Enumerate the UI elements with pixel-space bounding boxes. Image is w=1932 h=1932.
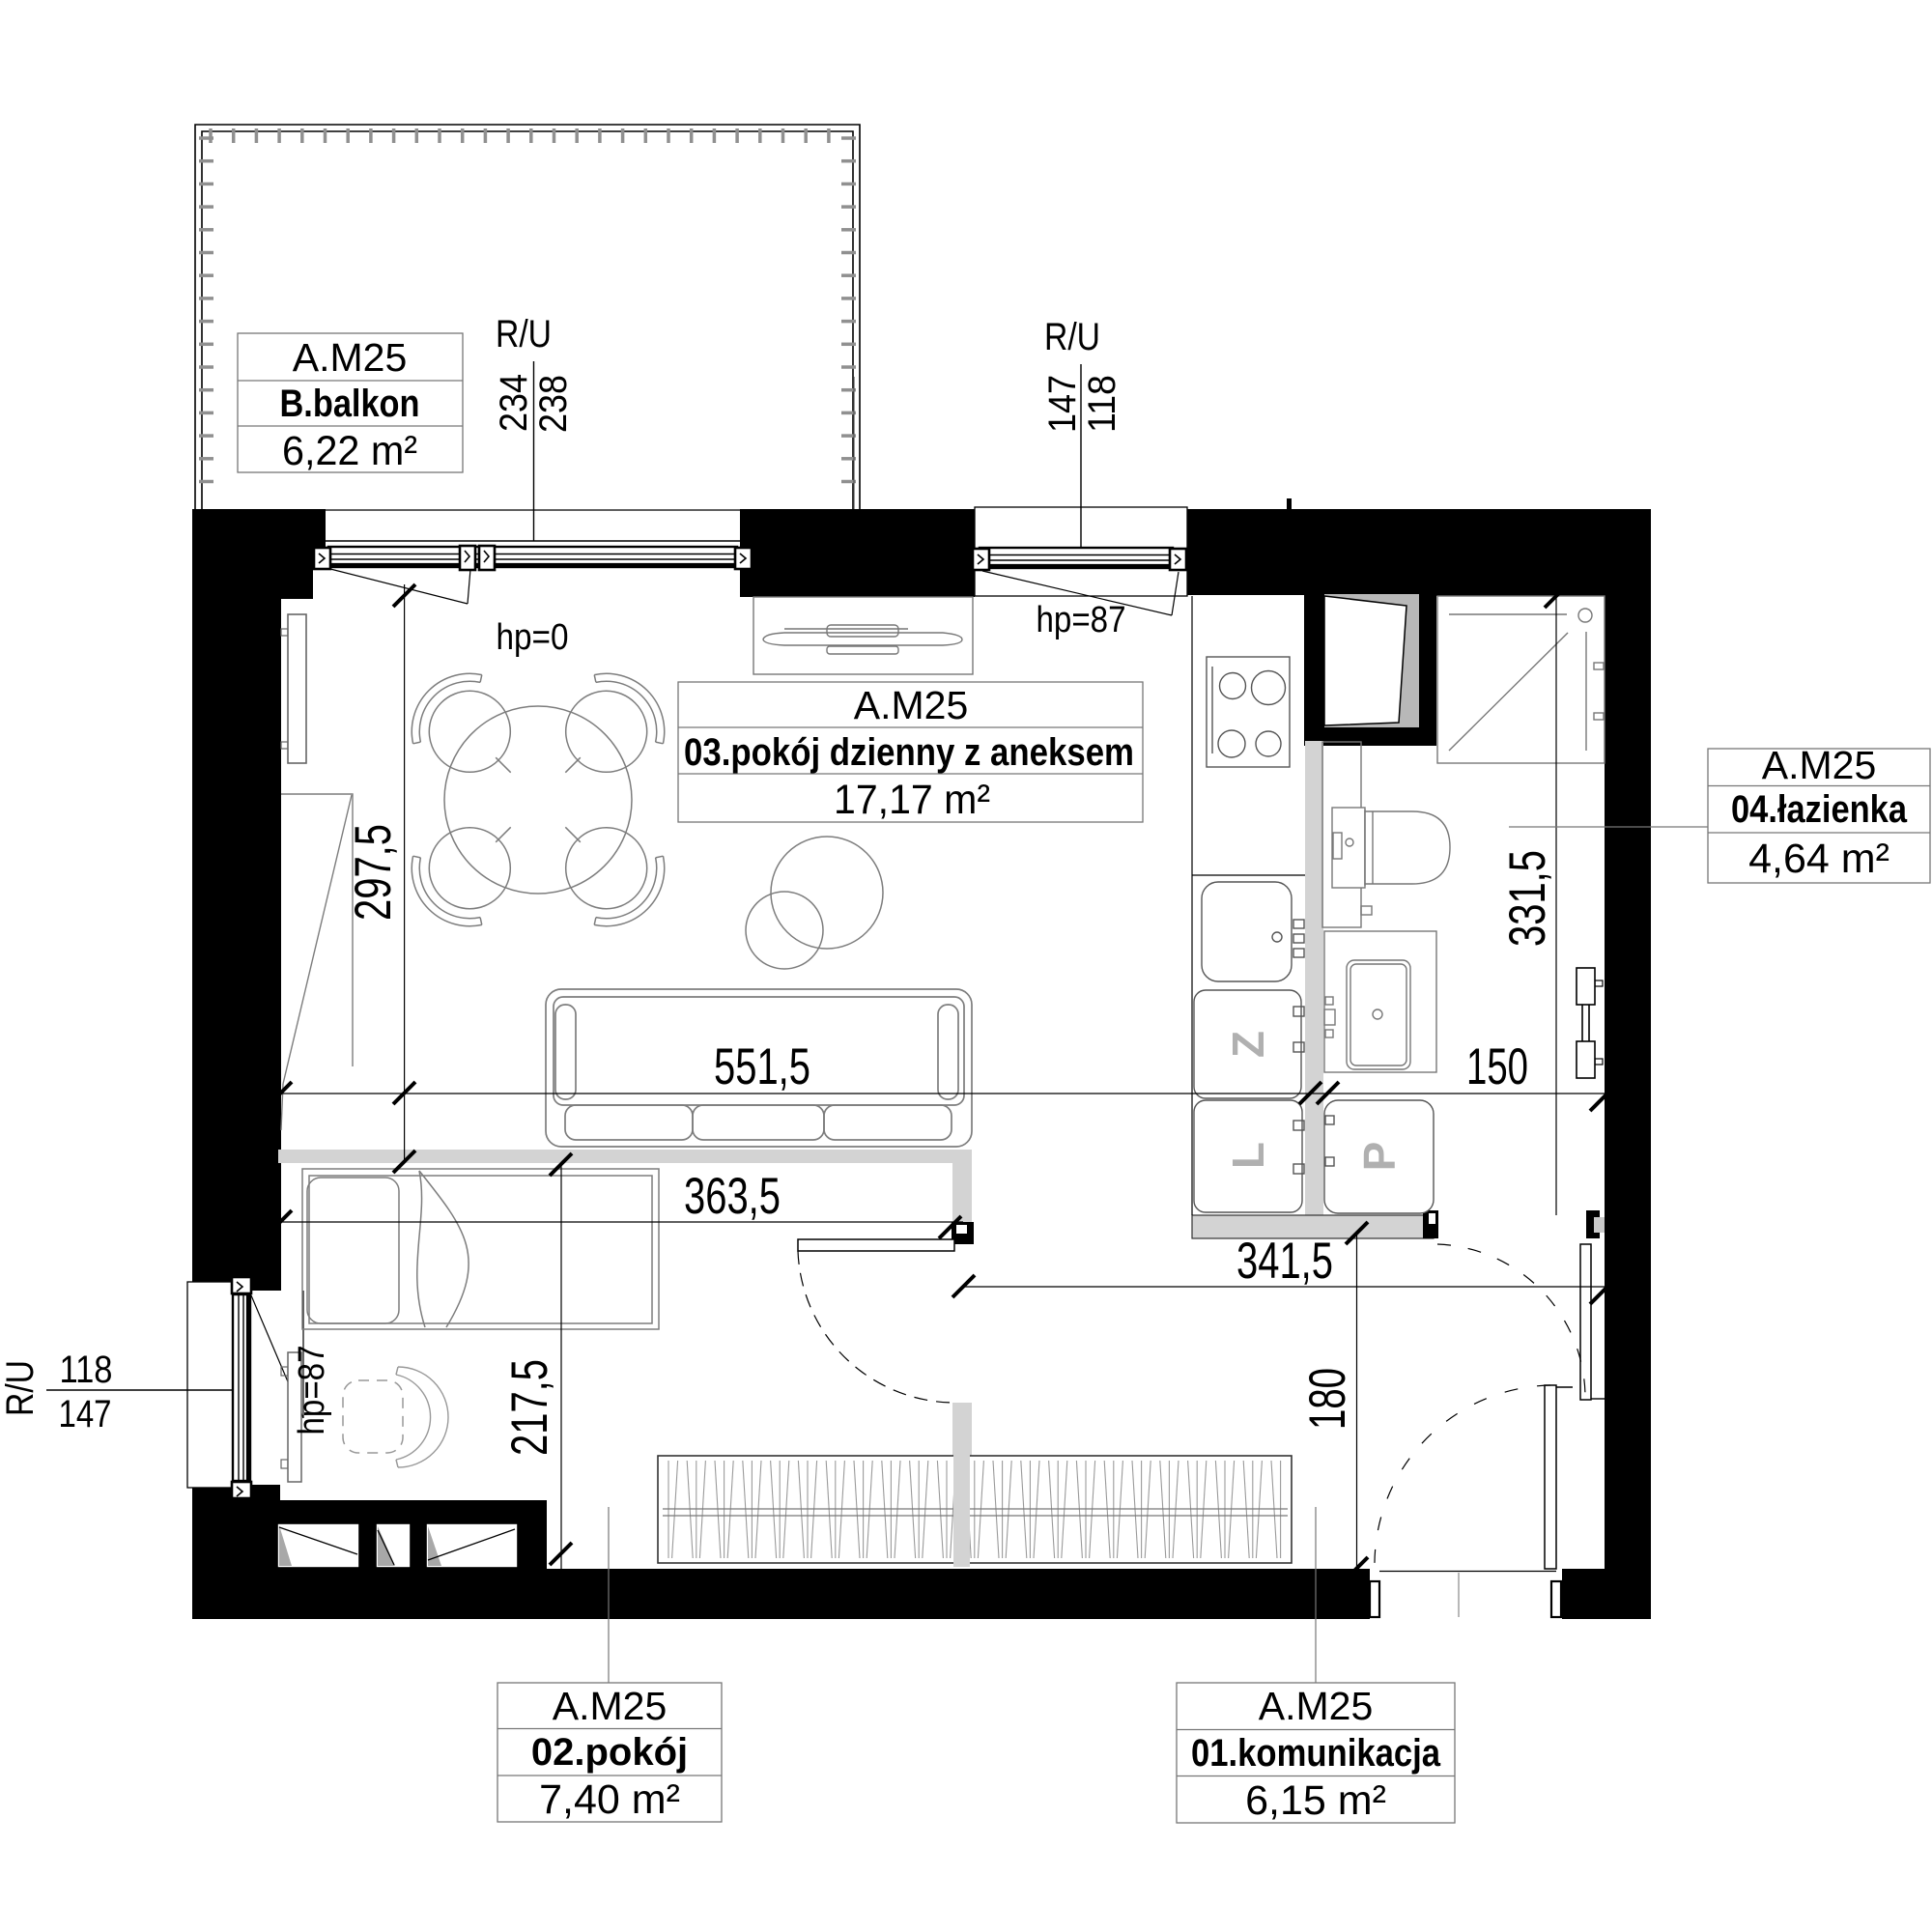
svg-text:hp=87: hp=87 [292, 1346, 332, 1435]
svg-text:02.pokój: 02.pokój [531, 1731, 688, 1774]
svg-text:238: 238 [532, 375, 575, 433]
svg-text:R/U: R/U [1044, 316, 1100, 358]
svg-text:147: 147 [1041, 375, 1084, 433]
svg-text:551,5: 551,5 [714, 1038, 810, 1095]
svg-text:A.M25: A.M25 [1259, 1684, 1374, 1728]
svg-text:04.łazienka: 04.łazienka [1731, 788, 1908, 831]
svg-text:147: 147 [59, 1393, 112, 1435]
svg-text:A.M25: A.M25 [854, 683, 969, 727]
svg-text:6,22 m²: 6,22 m² [282, 428, 417, 474]
svg-text:234: 234 [493, 374, 535, 432]
svg-text:01.komunikacja: 01.komunikacja [1191, 1732, 1441, 1775]
svg-text:7,40 m²: 7,40 m² [539, 1776, 680, 1823]
svg-text:A.M25: A.M25 [553, 1684, 668, 1728]
svg-text:L: L [1223, 1142, 1273, 1169]
svg-text:118: 118 [60, 1349, 113, 1391]
svg-text:6,15 m²: 6,15 m² [1245, 1777, 1386, 1824]
svg-text:4,64 m²: 4,64 m² [1748, 836, 1889, 882]
svg-text:hp=87: hp=87 [1037, 600, 1126, 640]
svg-text:150: 150 [1466, 1038, 1528, 1095]
svg-text:297,5: 297,5 [345, 824, 402, 921]
svg-text:331,5: 331,5 [1499, 850, 1556, 947]
svg-text:R/U: R/U [0, 1360, 42, 1416]
svg-text:341,5: 341,5 [1236, 1233, 1333, 1290]
svg-text:118: 118 [1081, 375, 1123, 433]
svg-text:217,5: 217,5 [501, 1359, 558, 1456]
svg-text:363,5: 363,5 [684, 1168, 781, 1225]
svg-text:hp=0: hp=0 [497, 617, 569, 658]
svg-text:A.M25: A.M25 [293, 335, 408, 380]
svg-text:Z: Z [1223, 1031, 1273, 1058]
svg-text:A.M25: A.M25 [1762, 743, 1877, 787]
svg-text:17,17 m²: 17,17 m² [834, 777, 990, 823]
svg-text:03.pokój dzienny z aneksem: 03.pokój dzienny z aneksem [684, 731, 1134, 774]
svg-text:R/U: R/U [496, 313, 552, 355]
svg-text:B.balkon: B.balkon [280, 383, 420, 425]
svg-text:P: P [1354, 1142, 1405, 1172]
svg-text:180: 180 [1299, 1368, 1356, 1430]
